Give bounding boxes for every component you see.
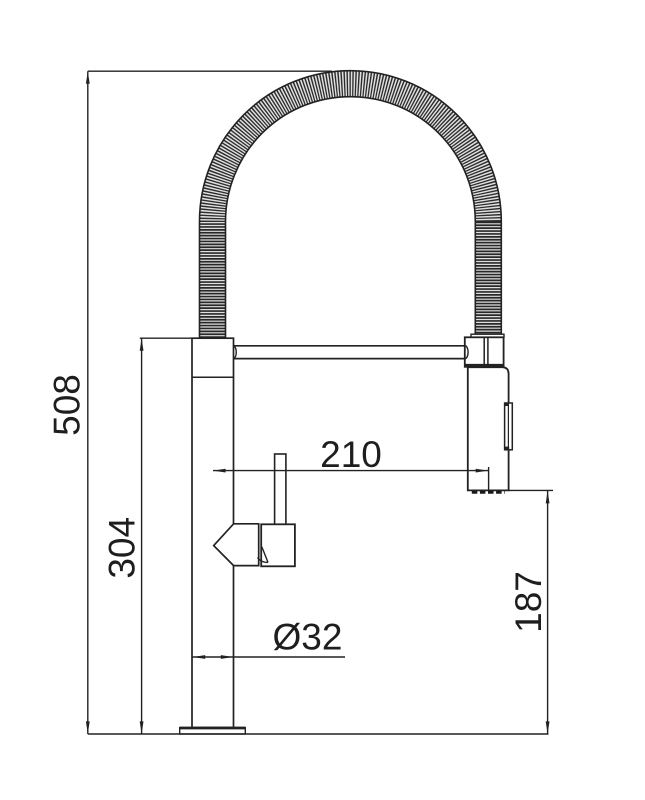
svg-text:304: 304	[101, 517, 142, 579]
svg-text:508: 508	[47, 374, 88, 436]
svg-text:187: 187	[508, 571, 549, 633]
svg-text:210: 210	[320, 434, 382, 475]
svg-text:Ø32: Ø32	[273, 617, 343, 658]
